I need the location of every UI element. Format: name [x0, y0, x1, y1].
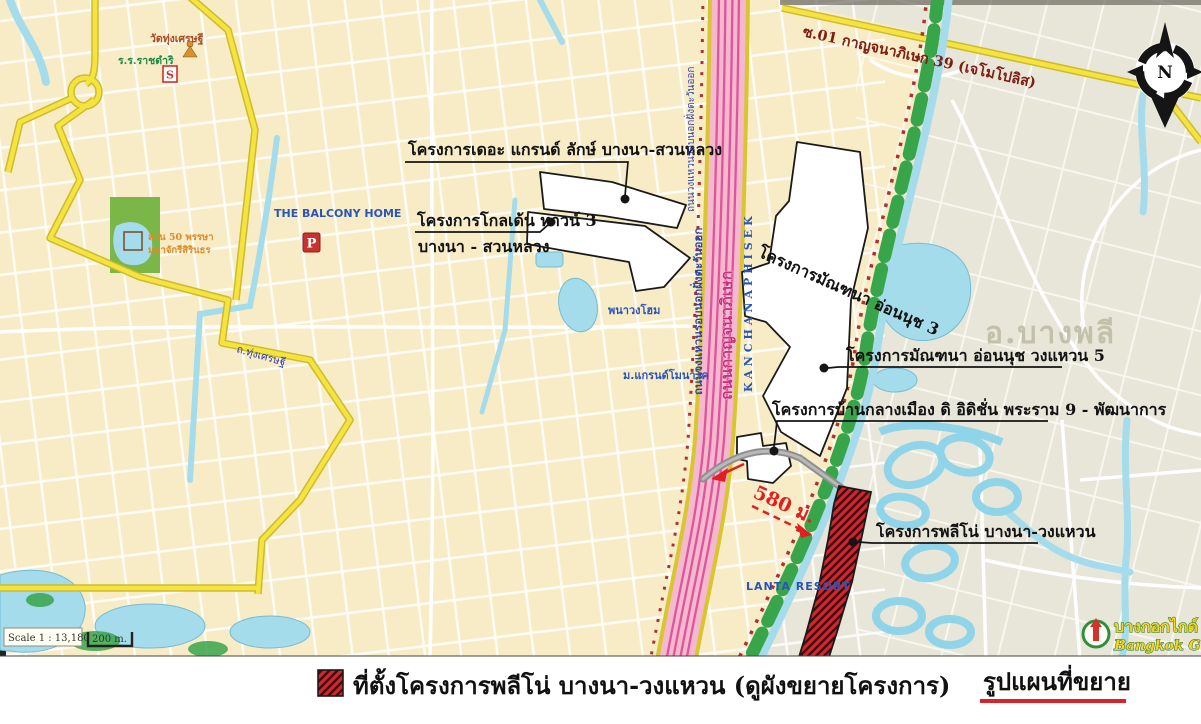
svg-text:P: P — [307, 237, 317, 252]
grand-monaco-label: ม.แกรนด์โมนาโค — [623, 368, 709, 382]
compass-north-label: N — [1157, 63, 1173, 83]
phanawong-home-label: พนาวงโฮม — [608, 303, 660, 317]
footer: ที่ตั้งโครงการพลีโน่ บางนา-วงแหวน (ดูผัง… — [0, 656, 1201, 724]
school-sign-icon: S — [163, 66, 177, 82]
map-title-underline — [980, 699, 1126, 703]
lanta-resort-label: LANTA RESORT — [746, 580, 850, 593]
kanchanaphisek-en-label: KANCHANAPHISEK — [742, 212, 755, 392]
legend-site-label: ที่ตั้งโครงการพลีโน่ บางนา-วงแหวน (ดูผัง… — [353, 667, 950, 701]
park-label-2: มหาจักรีสิรินธร — [148, 244, 211, 256]
kanchanaphisek-thai-label: ถนนกาญจนาภิเษก — [717, 271, 737, 400]
map-title: รูปแผนที่ขยาย — [983, 664, 1131, 697]
district-watermark: อ.บางพลี — [985, 316, 1116, 351]
balcony-home-label: THE BALCONY HOME — [274, 207, 401, 220]
grand-luck-label: โครงการเดอะ แกรนด์ ลักษ์ บางนา-สวนหลวง — [407, 139, 722, 159]
park-label-1: สวน 50 พรรษา — [148, 232, 214, 243]
school-label: ร.ร.ราชดำริ — [118, 55, 174, 67]
location-map-figure: 580 ม. โครงการเดอะ แกรนด์ ลักษ์ บางนา-สว… — [0, 0, 1201, 724]
publisher-en: Bangkok Guide — [1113, 638, 1201, 654]
legend-site-swatch — [318, 670, 343, 696]
baan-klang-muang-label: โครงการบ้านกลางเมือง ดิ อิดิชั่น พระราม … — [771, 398, 1167, 419]
temple-label: วัดทุ่งเศรษฐี — [150, 32, 204, 46]
ring-road-label-2: ถนนวงแหวนรอบนอกฝั่งตะวันออก — [683, 67, 697, 212]
golden-town-label-2: บางนา - สวนหลวง — [418, 237, 550, 256]
scale-text: Scale 1 : 13,180 — [8, 633, 90, 644]
golden-town-label-1: โครงการโกลเด้น ทาวน์ 3 — [416, 210, 597, 230]
pleno-label: โครงการพลีโน่ บางนา-วงแหวน — [875, 521, 1096, 541]
publisher-thai: บางกอกไกด์ — [1114, 617, 1198, 636]
parking-icon: P — [303, 233, 320, 252]
scale-bar-label: 200 m. — [92, 634, 127, 645]
svg-text:S: S — [166, 69, 174, 82]
